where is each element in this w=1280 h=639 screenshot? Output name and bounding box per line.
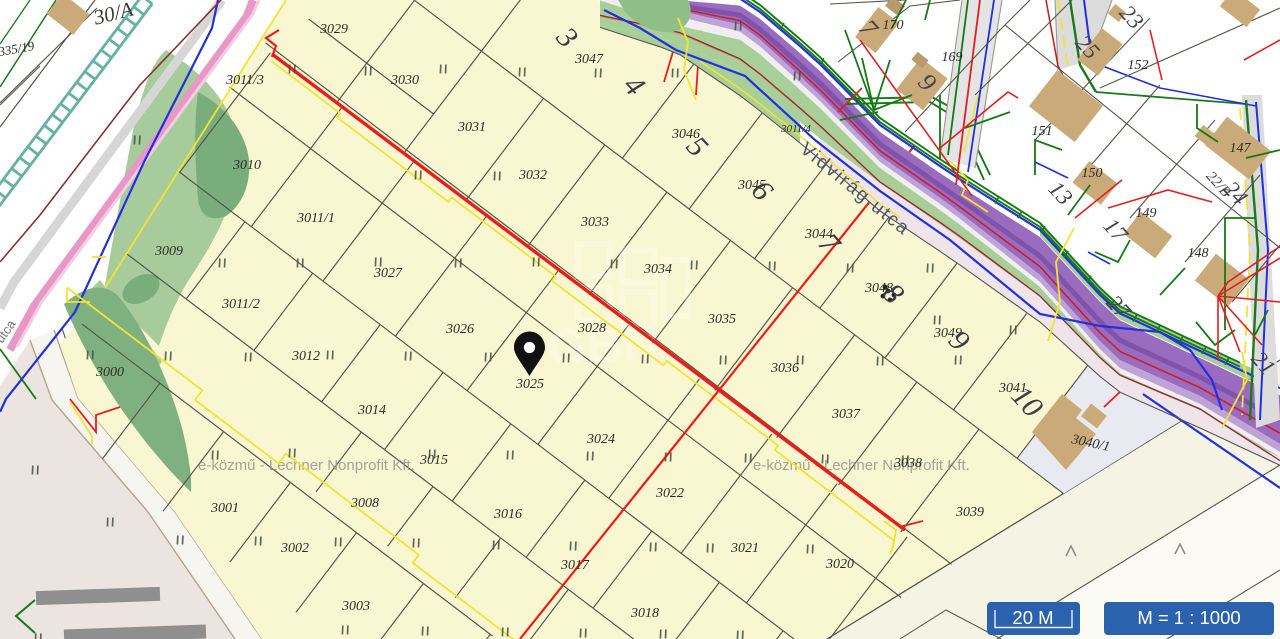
- svg-text:3027: 3027: [373, 266, 403, 281]
- svg-text:3022: 3022: [655, 486, 684, 501]
- svg-text:3008: 3008: [350, 496, 379, 511]
- svg-text:3016: 3016: [493, 507, 522, 522]
- svg-text:e-közmű - Lechner Nonprofit Kf: e-közmű - Lechner Nonprofit Kft.: [198, 457, 415, 474]
- svg-text:3030: 3030: [390, 73, 419, 88]
- svg-text:M = 1 : 1000: M = 1 : 1000: [1137, 607, 1240, 628]
- svg-text:e-közmű - Lechner Nonprofit Kf: e-közmű - Lechner Nonprofit Kft.: [753, 457, 970, 474]
- svg-text:3028: 3028: [577, 321, 606, 336]
- svg-text:3011/1: 3011/1: [296, 211, 335, 226]
- svg-text:3002: 3002: [280, 541, 309, 556]
- svg-text:3036: 3036: [770, 361, 799, 376]
- svg-text:3012: 3012: [291, 349, 320, 364]
- svg-text:3034: 3034: [643, 262, 672, 277]
- svg-text:3035: 3035: [707, 312, 736, 327]
- svg-text:3015: 3015: [419, 453, 448, 468]
- svg-text:3033: 3033: [580, 215, 609, 230]
- svg-text:3039: 3039: [955, 505, 984, 520]
- svg-text:169: 169: [942, 50, 963, 65]
- svg-text:3032: 3032: [518, 168, 547, 183]
- svg-text:3000: 3000: [95, 365, 124, 380]
- svg-text:170: 170: [883, 18, 904, 33]
- svg-text:152: 152: [1128, 58, 1149, 73]
- svg-text:3014: 3014: [357, 403, 386, 418]
- svg-text:3011/2: 3011/2: [221, 297, 260, 312]
- svg-text:149: 149: [1136, 206, 1157, 221]
- svg-text:150: 150: [1082, 166, 1103, 181]
- svg-text:3025: 3025: [515, 377, 544, 392]
- svg-text:3018: 3018: [630, 606, 659, 621]
- svg-text:3011/3: 3011/3: [225, 73, 264, 88]
- svg-text:147: 147: [1230, 141, 1252, 156]
- svg-text:3001: 3001: [210, 501, 239, 516]
- svg-text:3003: 3003: [341, 599, 370, 614]
- svg-text:3024: 3024: [586, 432, 615, 447]
- svg-text:3029: 3029: [319, 22, 348, 37]
- svg-text:3020: 3020: [825, 557, 854, 572]
- svg-text:20 M: 20 M: [1012, 607, 1053, 628]
- svg-text:3038: 3038: [893, 456, 922, 471]
- svg-text:3017: 3017: [560, 558, 590, 573]
- svg-text:3026: 3026: [445, 322, 474, 337]
- svg-text:3021: 3021: [730, 541, 759, 556]
- svg-text:3037: 3037: [831, 407, 861, 422]
- svg-text:3010: 3010: [232, 158, 261, 173]
- svg-text:148: 148: [1188, 246, 1209, 261]
- svg-text:3011/4: 3011/4: [780, 123, 811, 135]
- svg-text:3009: 3009: [154, 244, 183, 259]
- svg-text:3047: 3047: [574, 52, 604, 67]
- svg-text:151: 151: [1032, 124, 1053, 139]
- svg-text:3031: 3031: [457, 120, 486, 135]
